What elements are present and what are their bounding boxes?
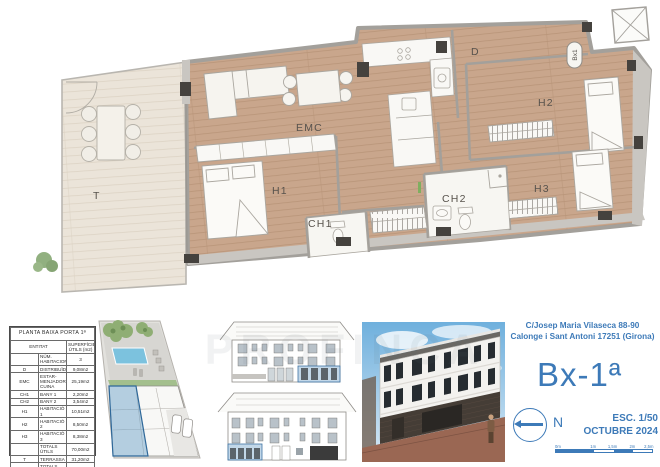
elevation-rear bbox=[218, 393, 356, 460]
toilet-icon bbox=[458, 207, 473, 214]
shaft-box bbox=[612, 7, 649, 43]
bed-h1 bbox=[202, 161, 268, 239]
scale-tick: 1,5m bbox=[608, 444, 617, 449]
radiator-mark bbox=[418, 182, 421, 193]
row-code: CH2 bbox=[11, 398, 39, 405]
hedge bbox=[108, 380, 178, 386]
pool bbox=[112, 348, 148, 364]
col-entity: ENTITAT bbox=[11, 341, 67, 354]
row-name: ESTAR-MENJADOR-CUINA bbox=[39, 373, 67, 391]
surface-table: PLANTA BAIXA PORTA 1ª ENTITAT SUPERFÍCIE… bbox=[10, 327, 95, 467]
unit-label: Bx-1ª bbox=[505, 356, 654, 394]
door-label: Bx1 bbox=[572, 49, 579, 61]
north-compass-icon bbox=[513, 408, 547, 442]
room-label-ch1: CH1 bbox=[308, 218, 333, 230]
table-row: TTERRASSA31,20m2 bbox=[11, 456, 95, 463]
table-row: CH2BANY 23,54m2 bbox=[11, 398, 95, 405]
row-name: HABITACIÓ 3 bbox=[39, 430, 67, 443]
row-code: T bbox=[11, 456, 39, 463]
room-label-ch2: CH2 bbox=[442, 193, 467, 205]
row-name: TOTALS CONSTRUÏTS (amb repercussió comun… bbox=[39, 463, 67, 467]
row-name: TERRASSA bbox=[39, 456, 67, 463]
table-row: H2HABITACIÓ 28,50m2 bbox=[11, 418, 95, 431]
row-name: TOTALS ÚTILS bbox=[39, 443, 67, 456]
table-row: CH1BANY 12,20m2 bbox=[11, 391, 95, 398]
row-code bbox=[11, 353, 39, 366]
scale-label: ESC. 1/50 bbox=[584, 412, 658, 425]
table-row: TOTALS ÚTILS70,00m2 bbox=[11, 443, 95, 456]
row-value: 8,50m2 bbox=[67, 418, 95, 431]
entrance-door bbox=[392, 417, 404, 440]
room-label-d: D bbox=[471, 46, 480, 58]
row-value: 2,20m2 bbox=[67, 391, 95, 398]
row-name: BANY 1 bbox=[39, 391, 67, 398]
row-name: BANY 2 bbox=[39, 398, 67, 405]
scale-bar: 0m 1m 1,5m 2m 2,5m bbox=[555, 444, 653, 453]
surface-table-title: PLANTA BAIXA PORTA 1ª bbox=[11, 328, 95, 341]
room-label-h2: H2 bbox=[538, 97, 554, 109]
scale-tick: 0m bbox=[555, 444, 561, 449]
row-code: CH1 bbox=[11, 391, 39, 398]
title-block: C/Josep Maria Vilaseca 88-90 Calonge i S… bbox=[505, 320, 660, 467]
bed-h3 bbox=[572, 149, 613, 211]
row-value: 9,08m2 bbox=[67, 366, 95, 373]
row-value: 8,38m2 bbox=[67, 430, 95, 443]
terrace-room bbox=[33, 62, 186, 292]
row-name: DISTRIBUÏDOR bbox=[39, 366, 67, 373]
address-line1: C/Josep Maria Vilaseca 88-90 bbox=[505, 320, 660, 331]
entrance-door-tag: Bx1 bbox=[567, 42, 582, 68]
date-label: OCTUBRE 2024 bbox=[584, 425, 658, 438]
drawing-sheet: Bx1 T EMC D H1 H2 H3 CH1 CH2 PLANTA BAIX… bbox=[0, 0, 660, 467]
garage-door bbox=[310, 446, 338, 460]
table-row: EMCESTAR-MENJADOR-CUINA25,19m2 bbox=[11, 373, 95, 391]
row-code: H2 bbox=[11, 418, 39, 431]
site-plan bbox=[96, 318, 214, 464]
row-code: D bbox=[11, 366, 39, 373]
address-line2: Calonge i Sant Antoni 17251 (Girona) bbox=[505, 331, 660, 342]
bed-h2 bbox=[584, 77, 624, 153]
room-label-emc: EMC bbox=[296, 122, 323, 134]
row-value: 31,20m2 bbox=[67, 456, 95, 463]
row-code bbox=[11, 463, 39, 467]
row-name: NÚM. HABITACIONS bbox=[39, 353, 67, 366]
row-value: 10,51m2 bbox=[67, 405, 95, 418]
row-code: H3 bbox=[11, 430, 39, 443]
terrace-plant bbox=[33, 252, 58, 272]
table-row: H1HABITACIÓ 110,51m2 bbox=[11, 405, 95, 418]
col-surface: SUPERFÍCIES ÚTILS (m2) bbox=[67, 341, 95, 354]
elevation-front bbox=[220, 322, 354, 382]
row-value: 70,00m2 bbox=[67, 443, 95, 456]
table-row: H3HABITACIÓ 38,38m2 bbox=[11, 430, 95, 443]
elevations bbox=[216, 318, 359, 464]
table-row: NÚM. HABITACIONS3 bbox=[11, 353, 95, 366]
building-render bbox=[362, 322, 505, 462]
room-label-h1: H1 bbox=[272, 185, 288, 197]
row-code: H1 bbox=[11, 405, 39, 418]
row-name: HABITACIÓ 1 bbox=[39, 405, 67, 418]
row-value: 3,54m2 bbox=[67, 398, 95, 405]
row-name: HABITACIÓ 2 bbox=[39, 418, 67, 431]
terrace-table-set bbox=[82, 105, 141, 162]
scale-tick: 1m bbox=[590, 444, 596, 449]
scale-tick: 2,5m bbox=[644, 444, 653, 449]
floor-plan: Bx1 T EMC D H1 H2 H3 CH1 CH2 bbox=[0, 0, 660, 316]
table-row: DDISTRIBUÏDOR9,08m2 bbox=[11, 366, 95, 373]
north-label: N bbox=[553, 414, 563, 430]
row-value: 3 bbox=[67, 353, 95, 366]
row-value: 25,19m2 bbox=[67, 373, 95, 391]
row-code bbox=[11, 443, 39, 456]
row-value: 85,58m2 bbox=[67, 463, 95, 467]
surface-table-panel: PLANTA BAIXA PORTA 1ª ENTITAT SUPERFÍCIE… bbox=[9, 326, 96, 456]
room-label-h3: H3 bbox=[534, 183, 550, 195]
scale-tick: 2m bbox=[629, 444, 635, 449]
room-label-terrace: T bbox=[93, 190, 101, 202]
row-code: EMC bbox=[11, 373, 39, 391]
sink-icon bbox=[433, 206, 451, 220]
table-row: TOTALS CONSTRUÏTS (amb repercussió comun… bbox=[11, 463, 95, 467]
